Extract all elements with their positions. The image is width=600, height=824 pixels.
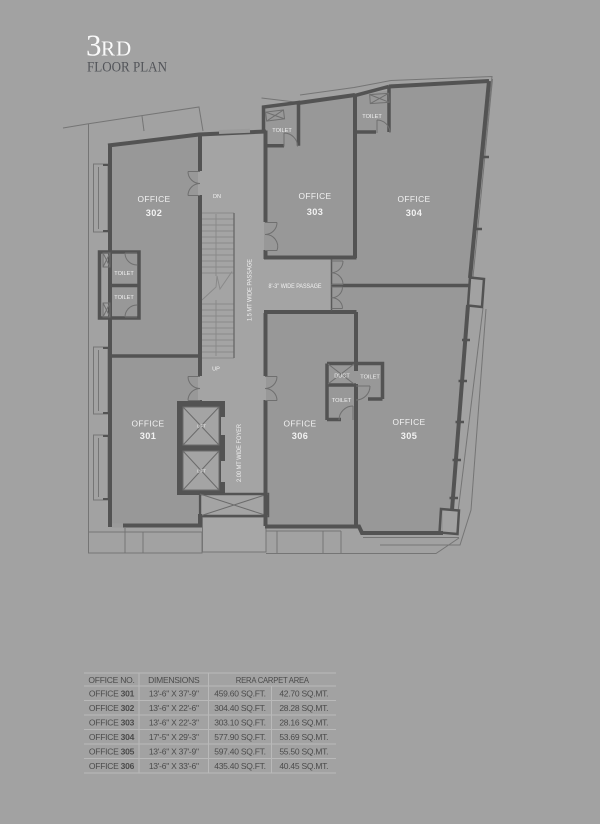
svg-text:TOILET: TOILET: [114, 295, 134, 301]
svg-text:OFFICE 303: OFFICE 303: [89, 718, 135, 728]
svg-text:13'-6" X 22'-6": 13'-6" X 22'-6": [149, 703, 199, 713]
svg-text:OFFICE 301: OFFICE 301: [89, 689, 135, 699]
svg-text:OFFICE 306: OFFICE 306: [89, 761, 135, 771]
svg-text:597.40 SQ.FT.: 597.40 SQ.FT.: [214, 747, 266, 757]
svg-text:306: 306: [292, 431, 309, 441]
svg-text:40.45 SQ.MT.: 40.45 SQ.MT.: [279, 761, 328, 771]
svg-text:OFFICE: OFFICE: [392, 417, 425, 427]
svg-text:1.5 MT WIDE PASSAGE: 1.5 MT WIDE PASSAGE: [247, 259, 254, 321]
svg-text:TOILET: TOILET: [332, 398, 352, 404]
svg-text:RD: RD: [101, 37, 132, 61]
svg-text:55.50 SQ.MT.: 55.50 SQ.MT.: [279, 747, 328, 757]
svg-text:OFFICE 304: OFFICE 304: [89, 732, 135, 742]
svg-text:RERA CARPET AREA: RERA CARPET AREA: [236, 675, 310, 685]
svg-text:TOILET: TOILET: [272, 128, 292, 134]
svg-text:305: 305: [401, 431, 418, 441]
svg-text:28.16 SQ.MT.: 28.16 SQ.MT.: [279, 718, 328, 728]
svg-text:OFFICE: OFFICE: [137, 194, 170, 204]
svg-text:28.28 SQ.MT.: 28.28 SQ.MT.: [279, 703, 328, 713]
svg-text:13'-6" X 22'-3": 13'-6" X 22'-3": [149, 718, 199, 728]
svg-text:8'-3" WIDE PASSAGE: 8'-3" WIDE PASSAGE: [269, 283, 323, 290]
svg-text:OFFICE: OFFICE: [283, 419, 316, 429]
svg-text:53.69 SQ.MT.: 53.69 SQ.MT.: [279, 732, 328, 742]
svg-text:OFFICE 305: OFFICE 305: [89, 747, 135, 757]
svg-text:17'-5" X 29'-3": 17'-5" X 29'-3": [149, 732, 199, 742]
svg-text:FLOOR PLAN: FLOOR PLAN: [87, 60, 167, 76]
svg-text:TOILET: TOILET: [362, 114, 382, 120]
svg-text:OFFICE: OFFICE: [298, 191, 331, 201]
svg-text:301: 301: [140, 431, 157, 441]
svg-text:UP: UP: [212, 367, 220, 373]
svg-text:OFFICE NO.: OFFICE NO.: [88, 675, 134, 685]
svg-text:OFFICE: OFFICE: [397, 194, 430, 204]
svg-text:DIMENSIONS: DIMENSIONS: [148, 675, 200, 685]
svg-text:OFFICE: OFFICE: [131, 419, 164, 429]
svg-text:304.40 SQ.FT.: 304.40 SQ.FT.: [214, 703, 266, 713]
svg-text:OFFICE 302: OFFICE 302: [89, 703, 135, 713]
svg-text:303: 303: [307, 207, 324, 217]
svg-text:577.90 SQ.FT.: 577.90 SQ.FT.: [214, 732, 266, 742]
svg-text:TOILET: TOILET: [114, 271, 134, 277]
svg-text:3: 3: [86, 28, 102, 63]
svg-text:LIFT: LIFT: [197, 424, 206, 429]
svg-text:13'-6" X 37'-9": 13'-6" X 37'-9": [149, 747, 199, 757]
svg-text:42.70 SQ.MT.: 42.70 SQ.MT.: [279, 689, 328, 699]
svg-text:2.00 MT WIDE FOYER: 2.00 MT WIDE FOYER: [236, 424, 243, 482]
svg-text:303.10 SQ.FT.: 303.10 SQ.FT.: [214, 718, 266, 728]
svg-text:LIFT: LIFT: [197, 469, 206, 474]
svg-text:13'-6" X 37'-9": 13'-6" X 37'-9": [149, 689, 199, 699]
svg-text:304: 304: [406, 208, 423, 218]
svg-text:DN: DN: [213, 194, 221, 200]
svg-text:435.40 SQ.FT.: 435.40 SQ.FT.: [214, 761, 266, 771]
svg-text:302: 302: [146, 208, 163, 218]
svg-text:13'-6" X 33'-6": 13'-6" X 33'-6": [149, 761, 199, 771]
svg-text:DUCT: DUCT: [334, 374, 350, 380]
svg-text:TOILET: TOILET: [360, 375, 380, 381]
svg-text:459.60 SQ.FT.: 459.60 SQ.FT.: [214, 689, 266, 699]
